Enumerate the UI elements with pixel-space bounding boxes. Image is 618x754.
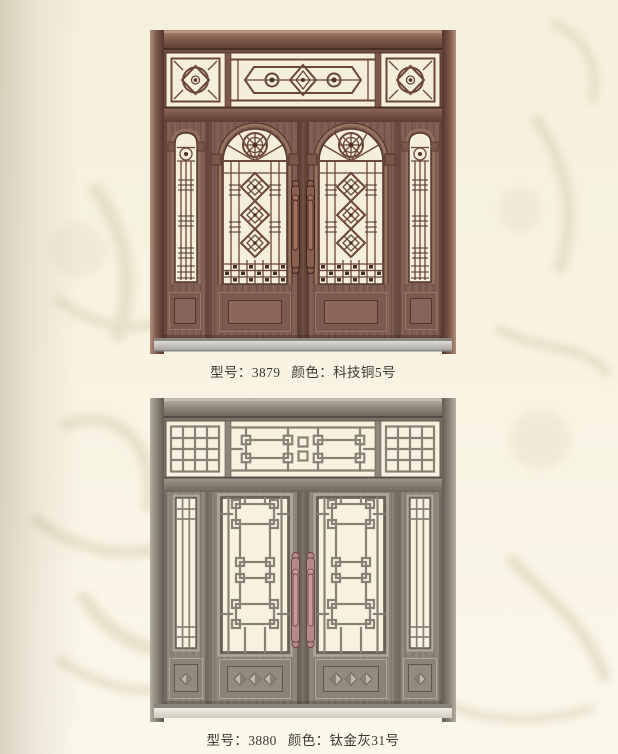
color-name: 科技铜5号 [333, 365, 396, 380]
model-label: 型号： [210, 365, 252, 380]
door1-handle [292, 181, 300, 274]
color-label: 颜色： [288, 733, 330, 748]
diamond-stud-row [234, 673, 276, 685]
door2-leaf [208, 492, 302, 706]
model-number: 3880 [248, 733, 277, 748]
door-image-3879 [150, 30, 456, 354]
door2-transom-grille [164, 421, 442, 492]
door2-side-panel [164, 492, 208, 706]
door-image-3880 [150, 398, 456, 722]
color-name: 钛金灰31号 [330, 733, 400, 748]
door1-side-panel [164, 122, 208, 340]
catalog-page: 型号：3879颜色：科技铜5号 [0, 0, 618, 754]
model-label: 型号： [207, 733, 249, 748]
product-caption-3879: 型号：3879颜色：科技铜5号 [150, 361, 456, 381]
door2-handle [292, 553, 300, 648]
color-label: 颜色： [291, 365, 333, 380]
product-figure-3879: 型号：3879颜色：科技铜5号 [150, 30, 456, 381]
product-caption-3880: 型号：3880颜色：钛金灰31号 [150, 729, 456, 749]
door1-threshold [154, 335, 452, 352]
door2-threshold [154, 701, 452, 718]
model-number: 3879 [252, 365, 281, 380]
product-figure-3880: 型号：3880颜色：钛金灰31号 [150, 398, 456, 749]
rosette-medallion [243, 133, 267, 157]
door1-leaf [208, 122, 302, 340]
door1-transom-grille [164, 53, 442, 122]
